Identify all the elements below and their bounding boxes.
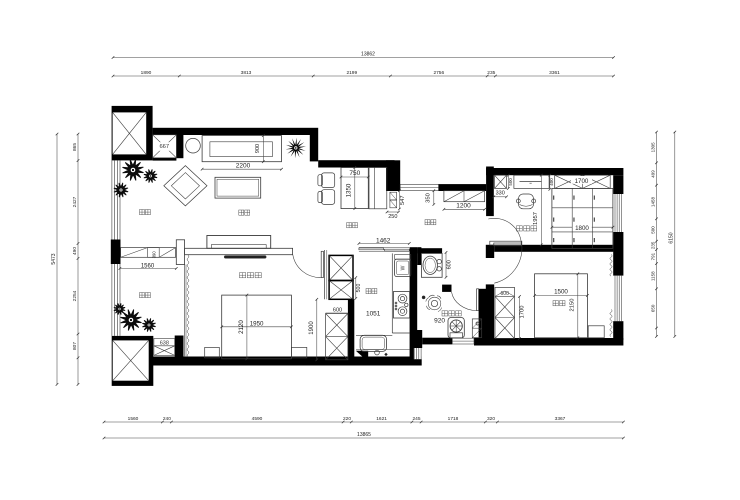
svg-text:667: 667 <box>159 144 169 150</box>
svg-text:240: 240 <box>163 416 171 422</box>
svg-text:1560: 1560 <box>141 263 155 269</box>
svg-text:3813: 3813 <box>241 70 252 76</box>
svg-text:1458: 1458 <box>650 196 655 207</box>
svg-text:1500: 1500 <box>554 288 568 295</box>
svg-text:1621: 1621 <box>376 416 387 422</box>
svg-text:220: 220 <box>343 416 351 422</box>
svg-text:3367: 3367 <box>555 416 566 422</box>
svg-text:235: 235 <box>487 70 495 76</box>
svg-text:499: 499 <box>650 170 655 178</box>
svg-text:1560: 1560 <box>128 416 139 422</box>
svg-text:6150: 6150 <box>669 232 675 243</box>
svg-text:1957: 1957 <box>533 212 539 225</box>
svg-text:2427: 2427 <box>72 196 78 207</box>
svg-text:490: 490 <box>72 247 78 255</box>
svg-text:330: 330 <box>496 191 505 197</box>
svg-text:3361: 3361 <box>549 70 560 76</box>
svg-text:500: 500 <box>508 178 513 186</box>
svg-text:600: 600 <box>333 308 342 314</box>
svg-text:13862: 13862 <box>361 52 375 58</box>
svg-text:638: 638 <box>160 341 169 347</box>
svg-text:245: 245 <box>412 416 420 422</box>
svg-text:1158: 1158 <box>650 271 655 281</box>
svg-text:2199: 2199 <box>346 70 357 76</box>
svg-text:390: 390 <box>151 251 156 259</box>
svg-text:W: W <box>401 265 407 270</box>
svg-text:1305: 1305 <box>650 142 655 153</box>
svg-text:1950: 1950 <box>250 320 264 327</box>
svg-text:791: 791 <box>650 252 655 260</box>
svg-text:600: 600 <box>446 260 452 269</box>
svg-text:920: 920 <box>434 317 445 324</box>
svg-text:4590: 4590 <box>252 416 263 422</box>
svg-text:1200: 1200 <box>456 203 471 210</box>
svg-text:547: 547 <box>400 195 406 205</box>
svg-text:2756: 2756 <box>433 70 444 76</box>
svg-text:235: 235 <box>650 241 655 249</box>
svg-text:320: 320 <box>487 416 495 422</box>
svg-text:600: 600 <box>501 291 510 297</box>
svg-text:13865: 13865 <box>357 432 371 438</box>
svg-text:865: 865 <box>72 143 78 151</box>
svg-text:350: 350 <box>426 193 432 203</box>
svg-text:1462: 1462 <box>376 237 391 244</box>
svg-text:1700: 1700 <box>575 178 589 185</box>
svg-text:2254: 2254 <box>72 290 78 301</box>
svg-text:1900: 1900 <box>309 321 315 335</box>
svg-text:1700: 1700 <box>519 306 525 319</box>
svg-text:1718: 1718 <box>448 416 459 422</box>
svg-text:400: 400 <box>549 178 554 186</box>
svg-text:500: 500 <box>650 226 655 234</box>
svg-text:2200: 2200 <box>236 162 251 169</box>
svg-text:1800: 1800 <box>575 225 589 232</box>
svg-text:250: 250 <box>388 214 397 220</box>
svg-text:2150: 2150 <box>569 299 575 312</box>
svg-text:5473: 5473 <box>51 253 57 264</box>
svg-text:1350: 1350 <box>346 183 353 197</box>
svg-text:900: 900 <box>255 144 261 153</box>
svg-text:1051: 1051 <box>366 311 381 318</box>
svg-text:650: 650 <box>650 304 655 312</box>
svg-text:1890: 1890 <box>141 70 152 76</box>
svg-text:500: 500 <box>356 284 362 293</box>
svg-text:807: 807 <box>72 342 78 350</box>
